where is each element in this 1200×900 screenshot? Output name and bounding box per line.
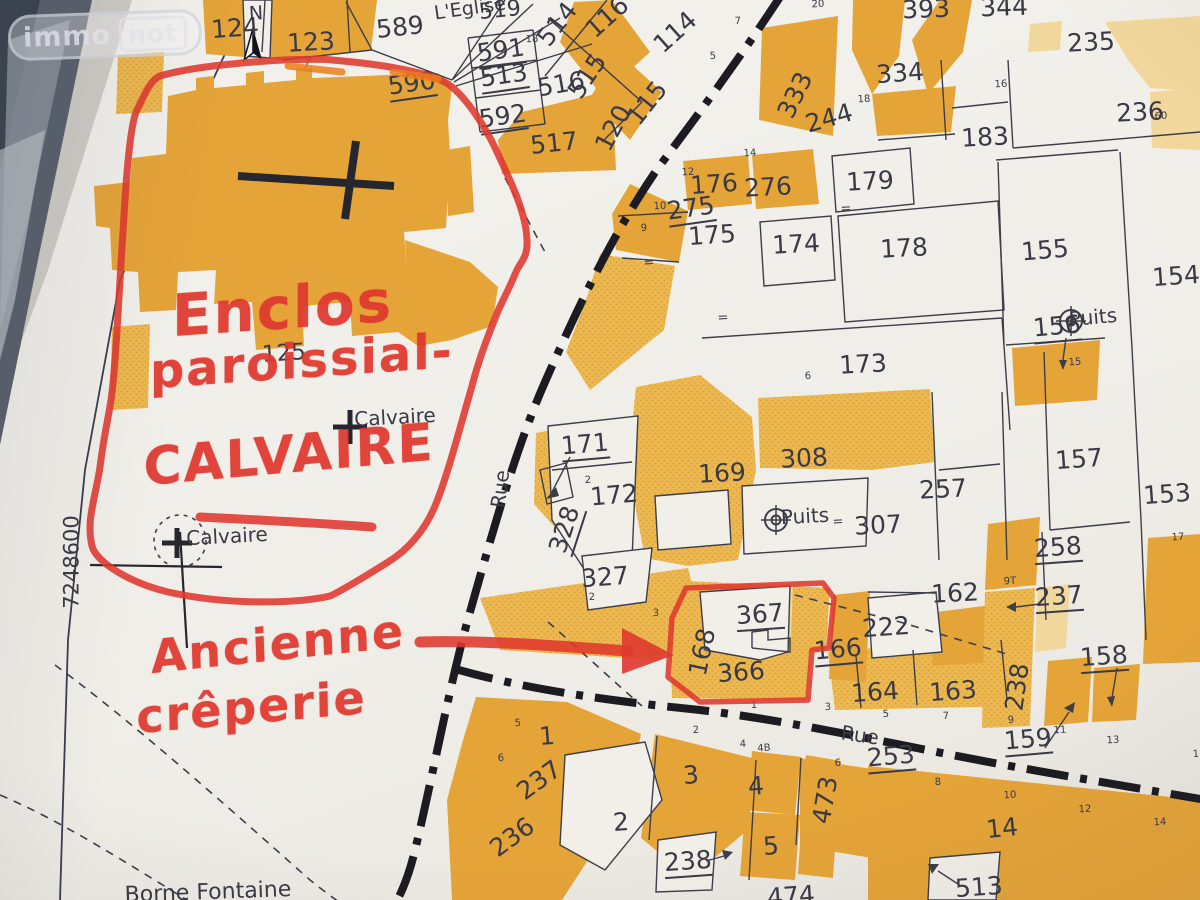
handwritten-ancienne: Ancienne — [150, 603, 406, 684]
watermark-logo: immo not — [7, 9, 203, 62]
handwritten-calvaire: CALVAIRE — [143, 413, 435, 499]
logo-text-immo: immo — [23, 19, 112, 53]
handwriting-layer: Enclosparoissial-CALVAIREAnciennecrêperi… — [0, 0, 1200, 900]
logo-text-not: not — [118, 15, 187, 52]
cadastral-map-photo: 1241235895905915135925195175165145151161… — [0, 0, 1200, 900]
